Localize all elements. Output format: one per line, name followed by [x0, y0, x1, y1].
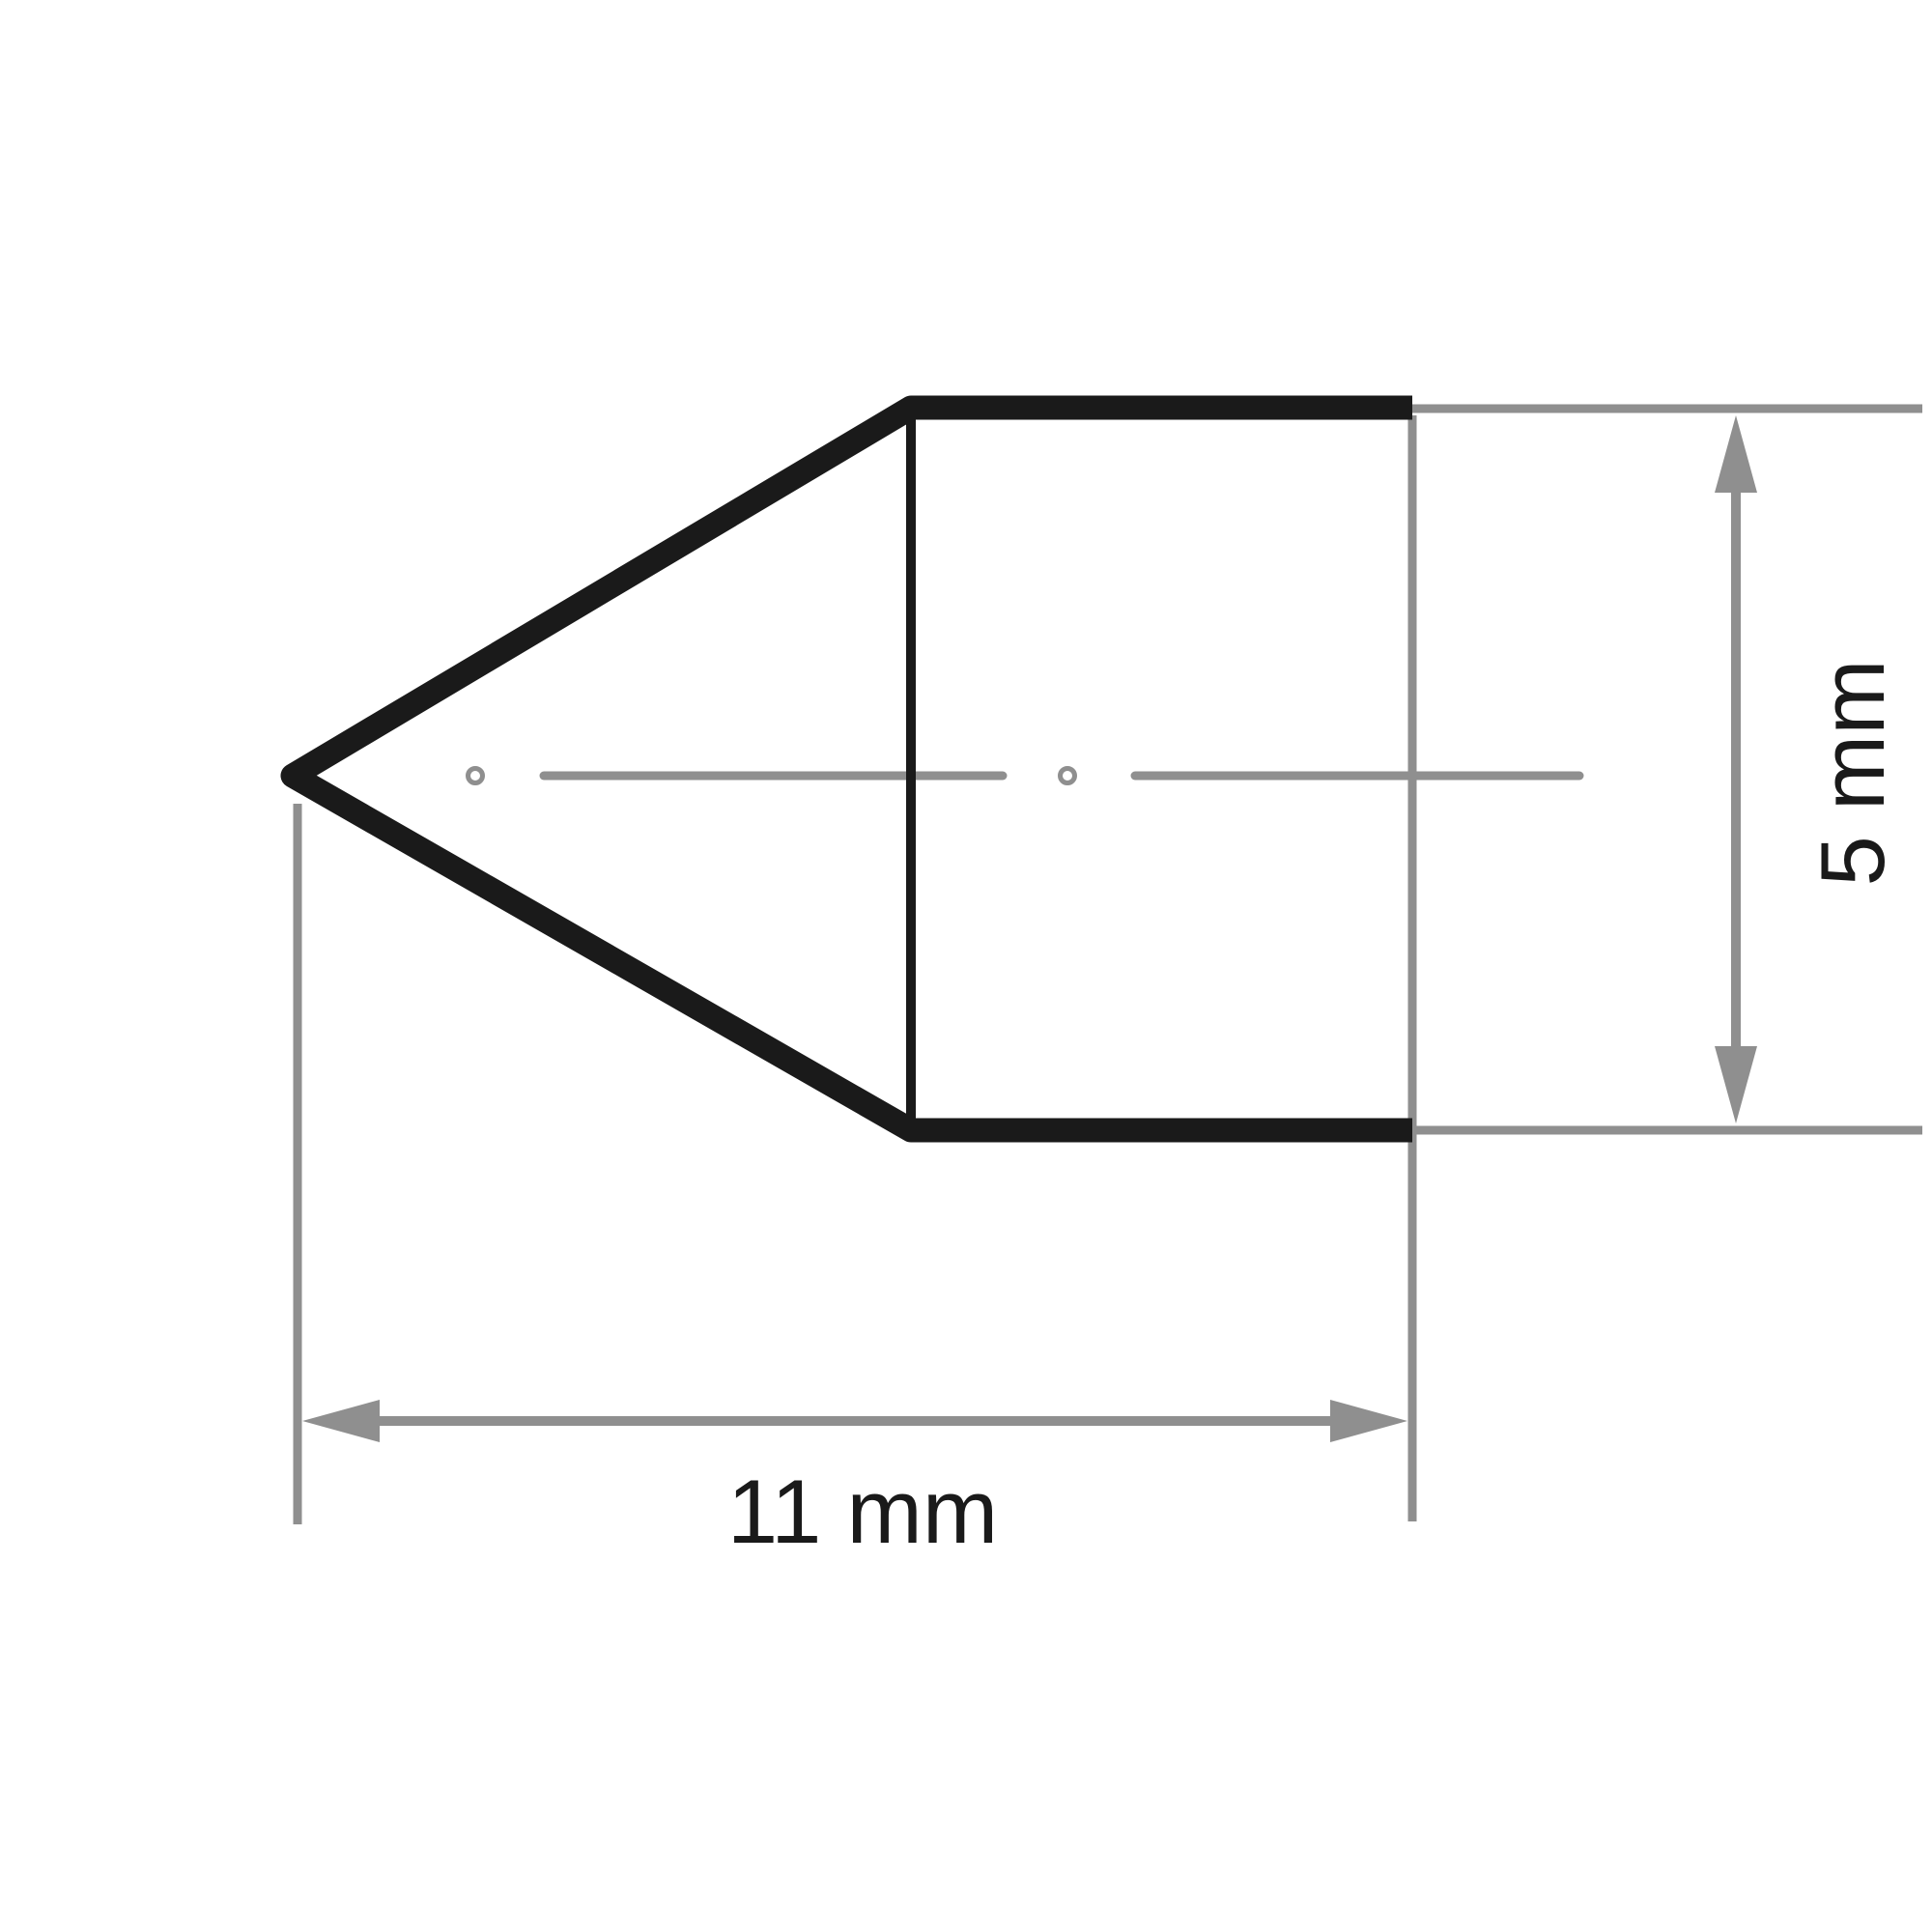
width-dimension: 11 mm: [302, 1400, 1407, 1562]
arrowhead-up-icon: [1715, 415, 1757, 493]
workpiece-outline: [293, 408, 1412, 1130]
height-dimension: 5 mm: [1715, 415, 1903, 1123]
arrowhead-left-icon: [302, 1400, 380, 1442]
centerline-dot-left: [469, 769, 483, 783]
height-dimension-label: 5 mm: [1802, 660, 1903, 887]
extension-lines: [298, 409, 1922, 1524]
arrowhead-down-icon: [1715, 1046, 1757, 1123]
construction-lines: 5 mm 11 mm: [298, 409, 1922, 1562]
arrowhead-right-icon: [1330, 1400, 1407, 1442]
workpiece: [293, 408, 1412, 1130]
centerline-dot-right: [1061, 769, 1075, 783]
technical-drawing: 5 mm 11 mm: [0, 0, 1932, 1932]
drawing-canvas: 5 mm 11 mm: [0, 0, 1932, 1932]
width-dimension-label: 11 mm: [727, 1461, 998, 1562]
